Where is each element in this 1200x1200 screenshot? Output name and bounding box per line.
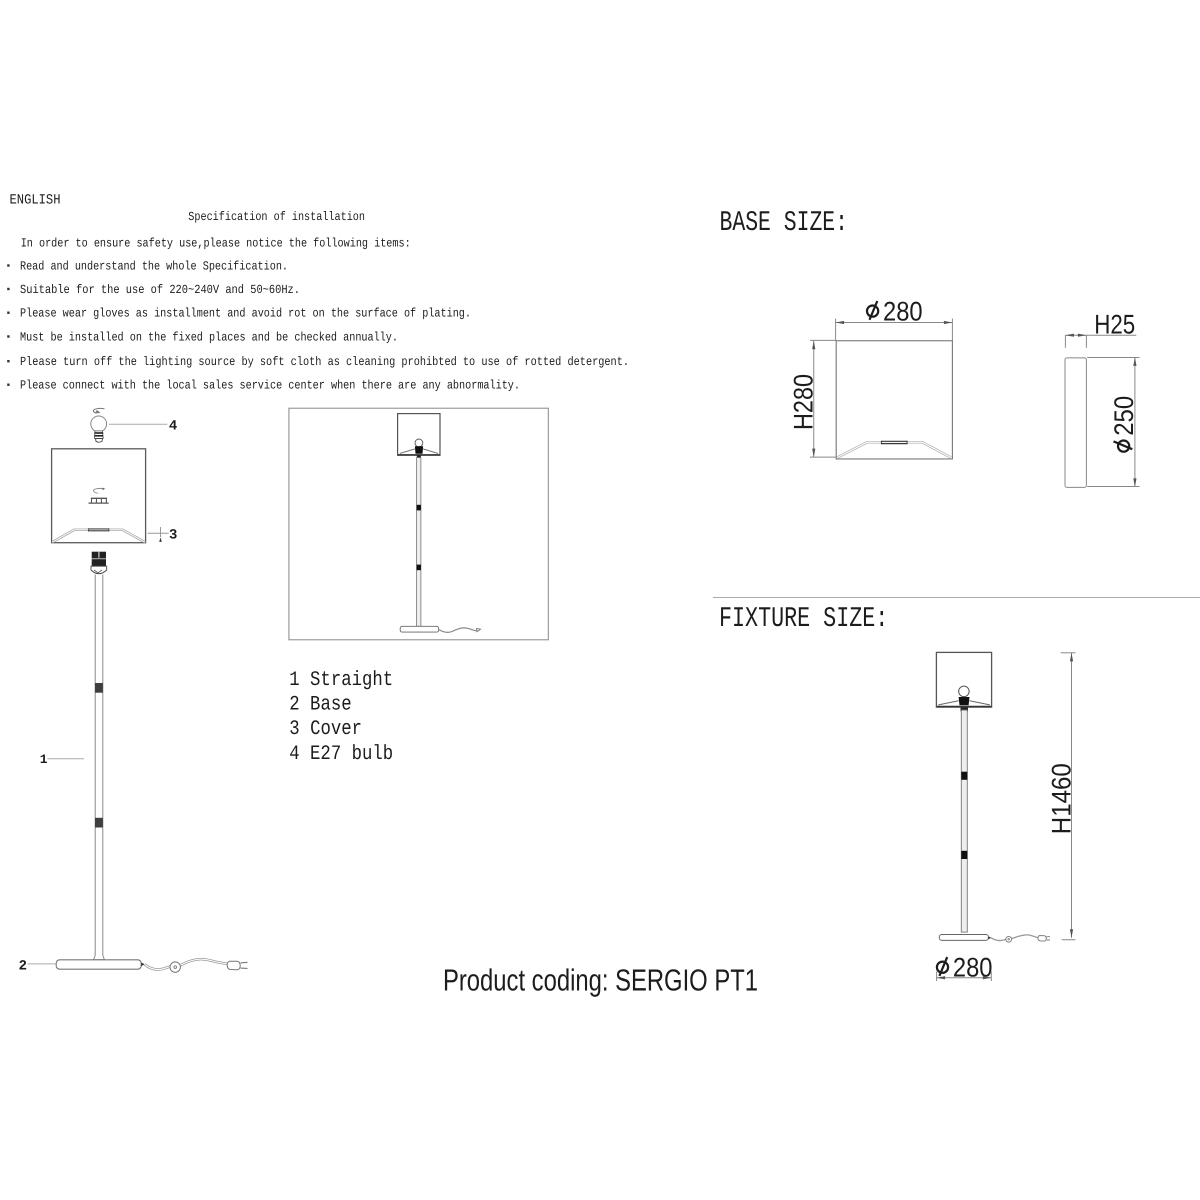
svg-text:280: 280 [883, 296, 923, 326]
svg-text:Read and understand the whole: Read and understand the whole Specificat… [20, 259, 288, 273]
svg-text:3: 3 [169, 528, 177, 544]
svg-text:2 Base: 2 Base [289, 694, 351, 717]
svg-text:1 Straight: 1 Straight [289, 669, 393, 692]
svg-text:ENGLISH: ENGLISH [10, 193, 61, 209]
svg-text:Suitable for the use of 220~24: Suitable for the use of 220~240V and 50~… [20, 283, 300, 297]
svg-text:Product coding: SERGIO PT1: Product coding: SERGIO PT1 [443, 964, 758, 998]
svg-text:Please connect with the local: Please connect with the local sales serv… [20, 379, 520, 393]
svg-text:4 E27 bulb: 4 E27 bulb [289, 743, 393, 766]
svg-text:BASE SIZE:: BASE SIZE: [720, 206, 849, 239]
svg-text:FIXTURE SIZE:: FIXTURE SIZE: [719, 602, 888, 635]
svg-text:Please wear gloves as installm: Please wear gloves as installment and av… [20, 307, 471, 321]
svg-text:Please turn off the lighting s: Please turn off the lighting source by s… [20, 355, 629, 369]
svg-text:In order to ensure safety use,: In order to ensure safety use,please not… [21, 237, 411, 251]
svg-text:3 Cover: 3 Cover [289, 718, 362, 741]
svg-text:Specification of installation: Specification of installation [188, 210, 365, 224]
svg-text:1: 1 [40, 752, 48, 767]
svg-text:4: 4 [169, 419, 177, 435]
svg-text:Must be installed on the fixed: Must be installed on the fixed places an… [20, 330, 398, 344]
svg-text:2: 2 [19, 958, 27, 974]
